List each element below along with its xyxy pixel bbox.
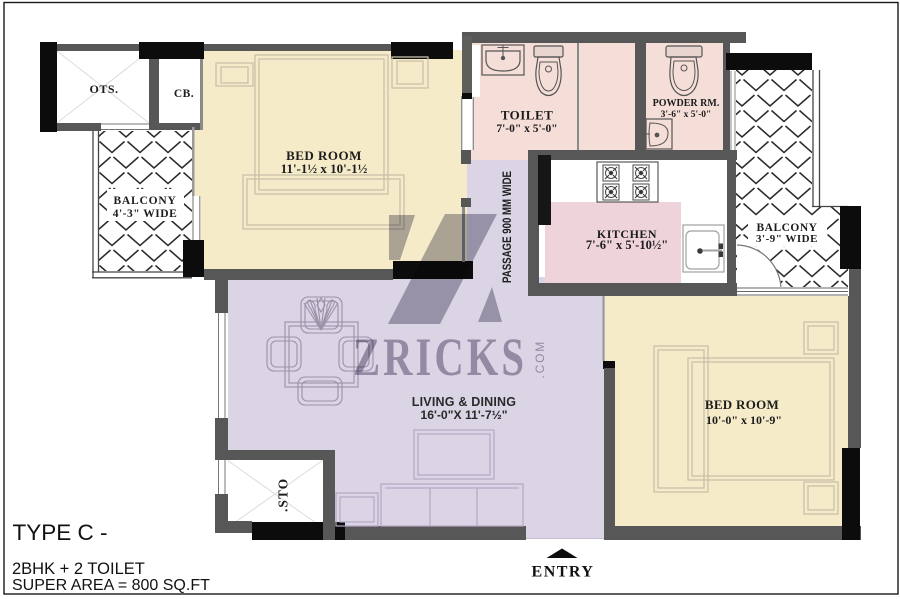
svg-text:.STO: .STO [276, 478, 291, 512]
svg-text:PASSAGE 900 MM WIDE: PASSAGE 900 MM WIDE [500, 171, 514, 283]
svg-text:3'-9" WIDE: 3'-9" WIDE [756, 233, 818, 245]
svg-text:11'-1½ x 10'-1½: 11'-1½ x 10'-1½ [281, 161, 368, 176]
svg-text:SUPER AREA = 800 SQ.FT: SUPER AREA = 800 SQ.FT [12, 577, 210, 594]
svg-text:2BHK + 2 TOILET: 2BHK + 2 TOILET [12, 560, 145, 578]
svg-text:.COM: .COM [533, 340, 547, 379]
svg-text:4'-3" WIDE: 4'-3" WIDE [113, 208, 178, 220]
svg-text:OTS.: OTS. [89, 82, 118, 96]
svg-text:CB.: CB. [174, 88, 194, 100]
svg-text:ENTRY: ENTRY [532, 564, 595, 581]
svg-text:ZRICKS: ZRICKS [353, 327, 527, 387]
svg-text:BED ROOM: BED ROOM [705, 397, 779, 412]
svg-text:TOILET: TOILET [501, 108, 554, 123]
svg-text:16'-0"X 11'-7½": 16'-0"X 11'-7½" [420, 408, 507, 422]
svg-text:10'-0" x 10'-9": 10'-0" x 10'-9" [706, 413, 782, 427]
svg-text:TYPE C -: TYPE C - [13, 520, 108, 545]
svg-text:BALCONY: BALCONY [113, 195, 176, 207]
svg-text:7'-0" x 5'-0": 7'-0" x 5'-0" [496, 123, 557, 135]
svg-text:POWDER RM.: POWDER RM. [653, 98, 720, 109]
svg-text:LIVING & DINING: LIVING & DINING [412, 395, 516, 409]
svg-text:7'-6" x 5'-10½": 7'-6" x 5'-10½" [586, 238, 668, 252]
svg-text:3'-6" x 5'-0": 3'-6" x 5'-0" [661, 110, 712, 120]
